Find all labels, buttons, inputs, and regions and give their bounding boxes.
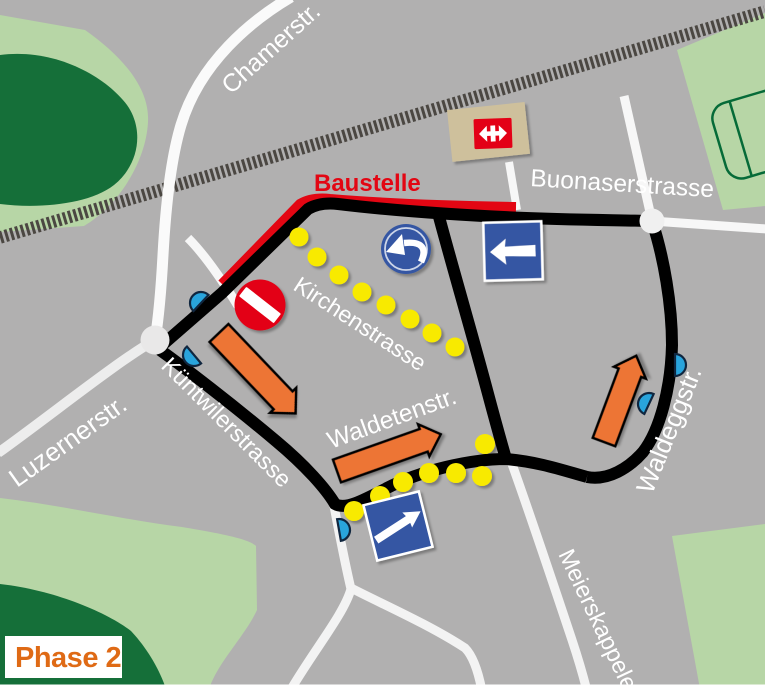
svg-text:Baustelle: Baustelle — [314, 170, 421, 197]
svg-text:Phase 2: Phase 2 — [15, 642, 121, 674]
